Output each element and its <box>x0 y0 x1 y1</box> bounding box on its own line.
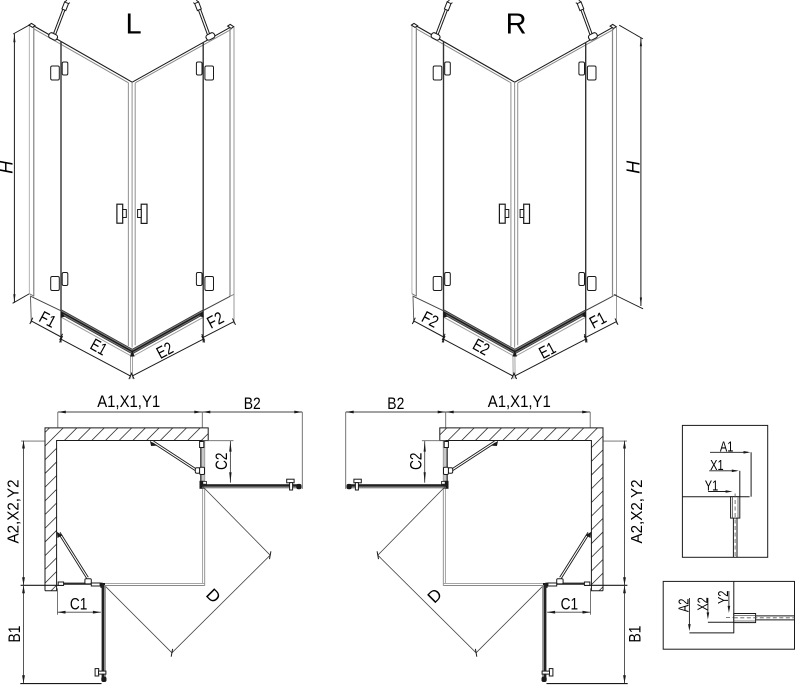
svg-text:A2,X2,Y2: A2,X2,Y2 <box>5 480 22 544</box>
svg-text:B2: B2 <box>244 394 261 413</box>
svg-text:A1,X1,Y1: A1,X1,Y1 <box>97 393 160 411</box>
svg-text:Y1: Y1 <box>705 478 719 495</box>
svg-text:A2,X2,Y2: A2,X2,Y2 <box>629 480 646 544</box>
svg-text:B1: B1 <box>625 626 644 643</box>
svg-text:C1: C1 <box>561 594 579 613</box>
svg-text:Y2: Y2 <box>715 591 732 605</box>
svg-text:L: L <box>126 8 142 40</box>
svg-text:C2: C2 <box>212 453 231 471</box>
svg-text:H: H <box>0 160 16 174</box>
svg-text:X2: X2 <box>694 597 711 611</box>
svg-text:R: R <box>506 8 527 40</box>
svg-text:C1: C1 <box>70 594 88 613</box>
svg-text:B1: B1 <box>5 626 24 643</box>
svg-text:X1: X1 <box>710 457 724 474</box>
svg-text:H: H <box>623 160 643 174</box>
svg-text:B2: B2 <box>387 394 404 413</box>
svg-text:A1: A1 <box>720 438 734 455</box>
svg-text:C2: C2 <box>407 453 426 471</box>
svg-text:A1,X1,Y1: A1,X1,Y1 <box>488 393 551 411</box>
